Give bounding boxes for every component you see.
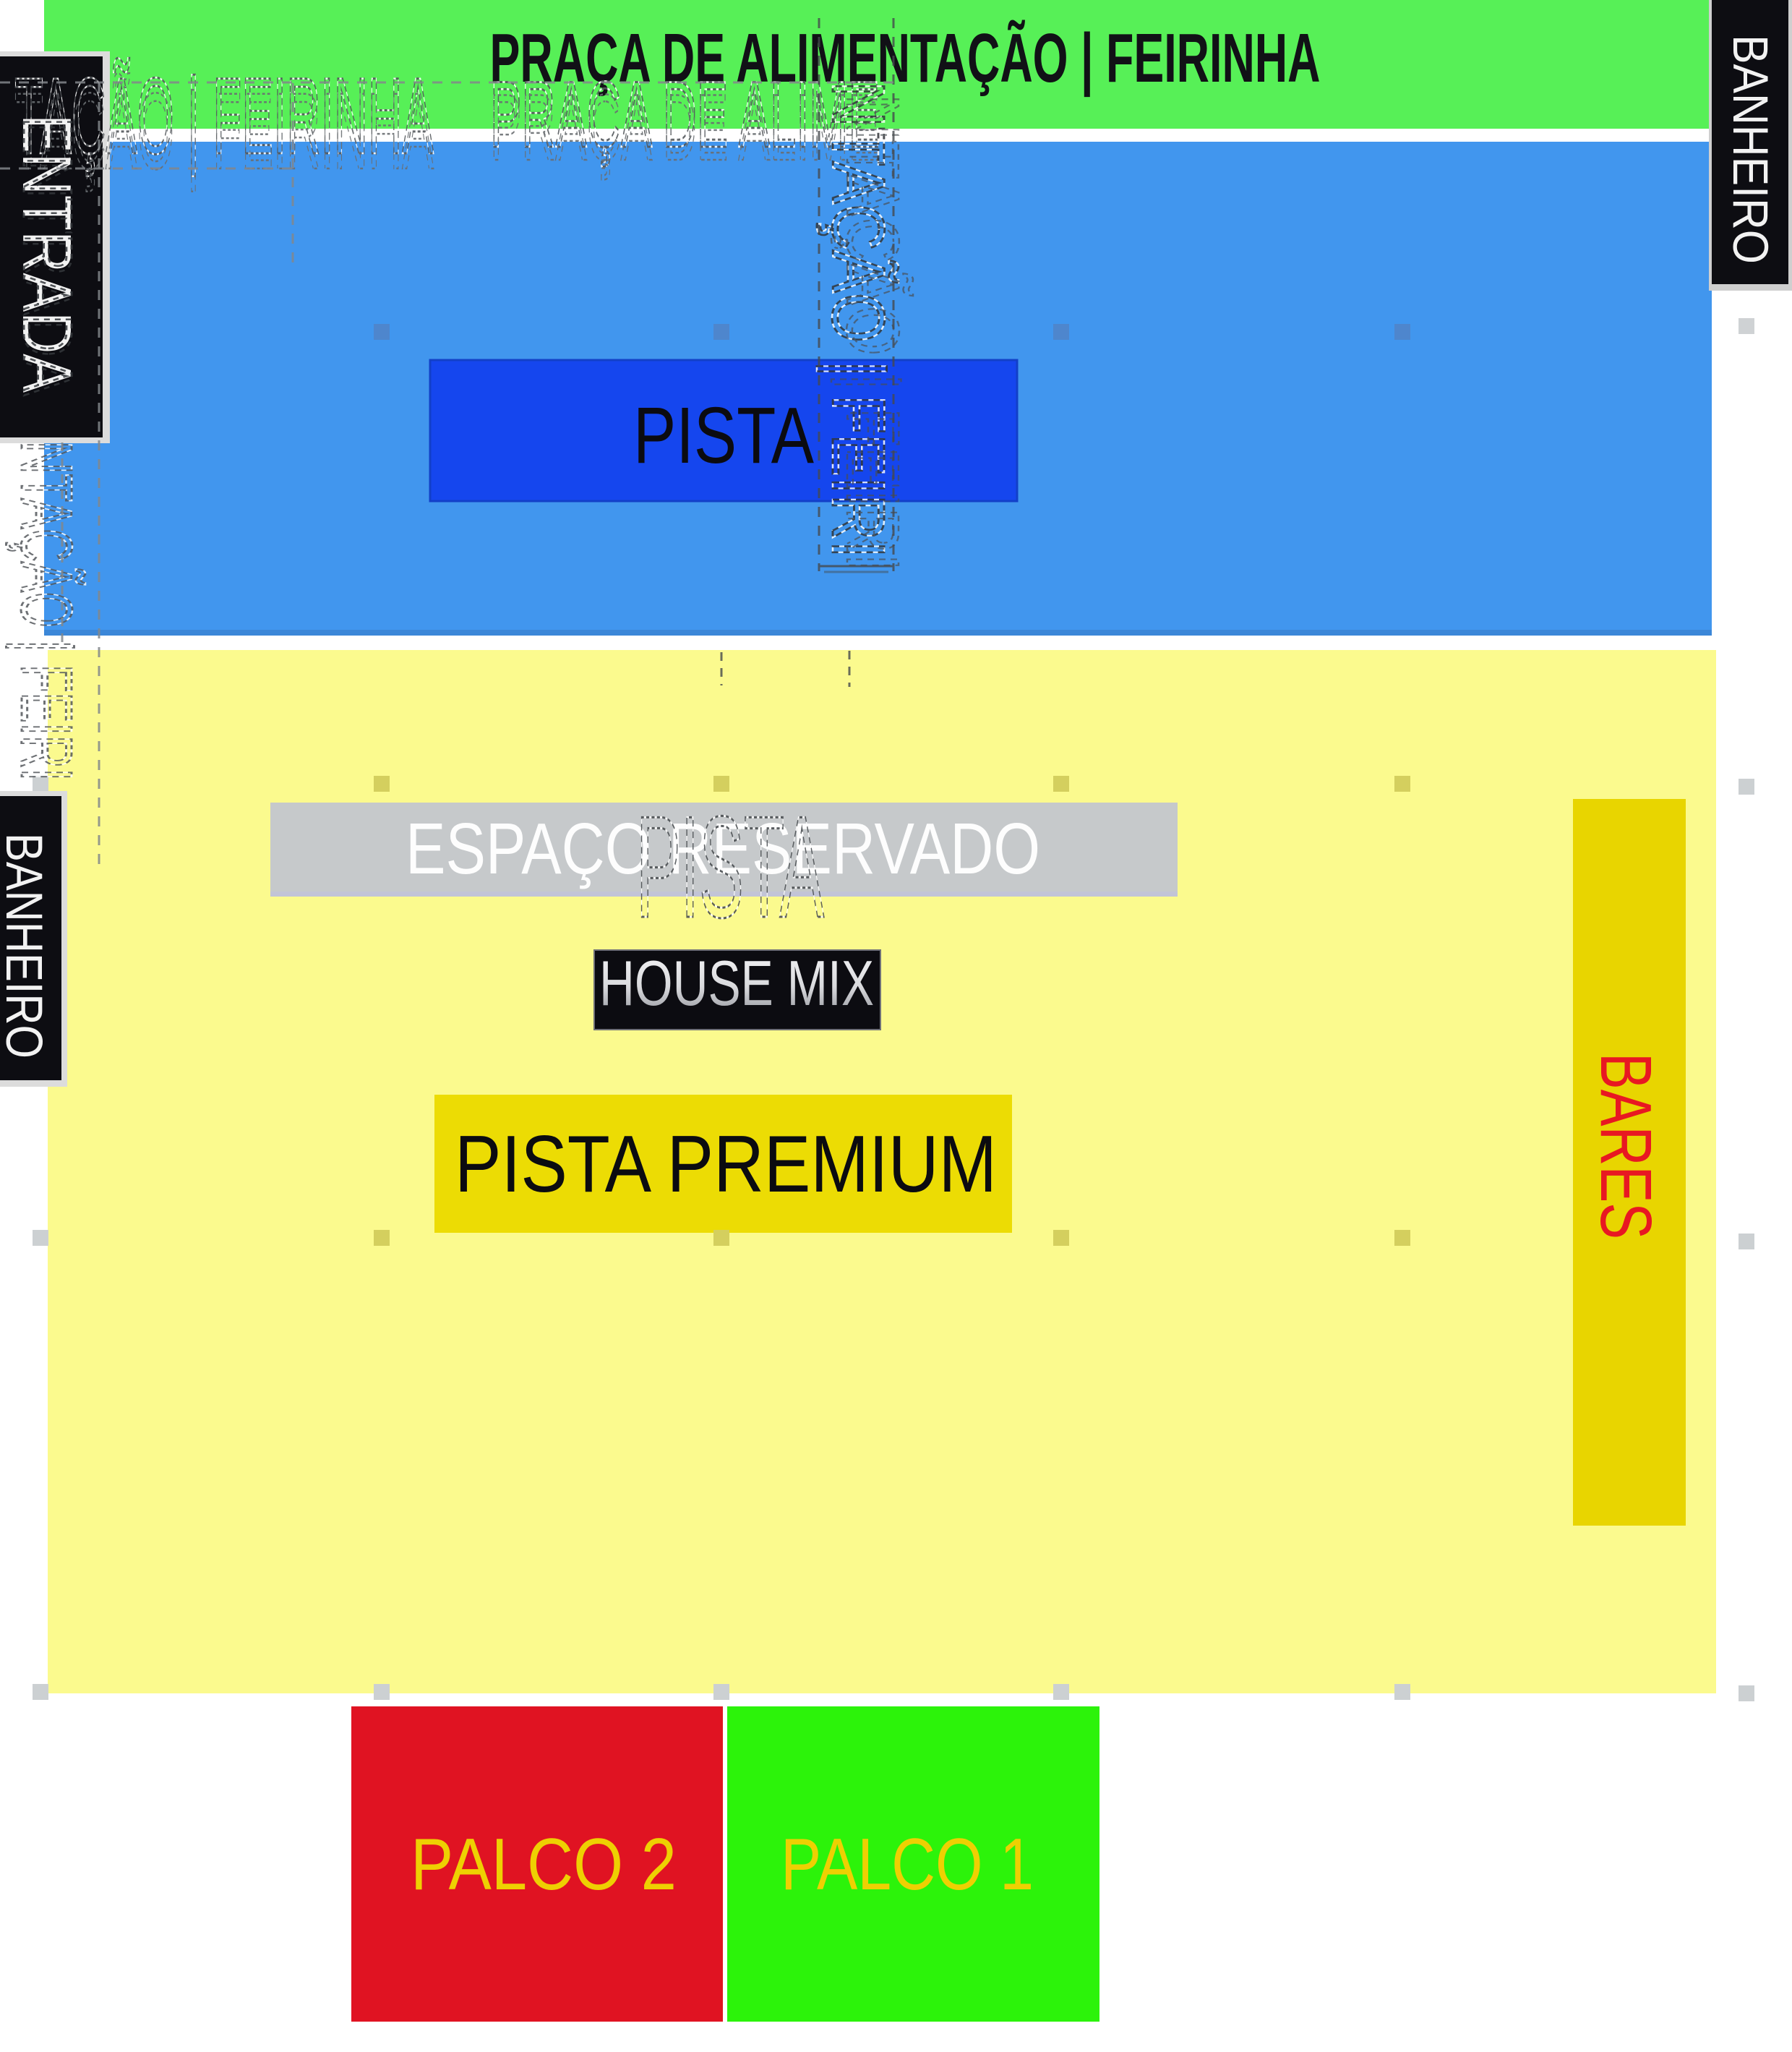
- svg-text:PALCO 2: PALCO 2: [411, 1824, 677, 1905]
- svg-text:BANHEIRO: BANHEIRO: [0, 833, 52, 1059]
- svg-text:HOUSE MIX: HOUSE MIX: [599, 947, 874, 1019]
- svg-text:PISTA: PISTA: [636, 787, 824, 948]
- svg-text:BARES: BARES: [1585, 1053, 1666, 1239]
- svg-text:BANHEIRO: BANHEIRO: [1723, 35, 1778, 264]
- svg-text:PISTA: PISTA: [633, 391, 815, 480]
- svg-text:PALCO 1: PALCO 1: [781, 1824, 1034, 1905]
- svg-text:ENTRADA: ENTRADA: [9, 117, 86, 396]
- svg-text:NTAÇÃO | FEIRI: NTAÇÃO | FEIRI: [6, 441, 87, 781]
- svg-text:NTAÇÃO | FEIRI: NTAÇÃO | FEIRI: [831, 94, 914, 571]
- svg-text:PISTA PREMIUM: PISTA PREMIUM: [455, 1119, 997, 1209]
